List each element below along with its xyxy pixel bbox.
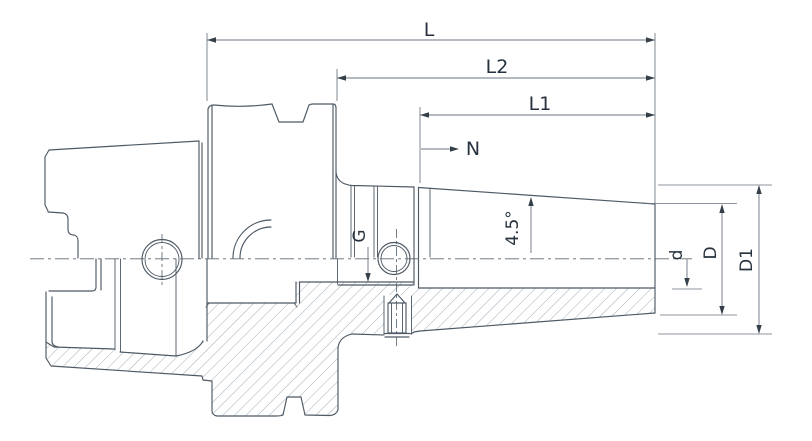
dim-label-D: D <box>701 246 721 259</box>
tool-holder-drawing: L L2 L1 N G <box>0 0 812 441</box>
set-screw <box>384 294 410 337</box>
flange-top <box>214 104 272 106</box>
flange-fillet-arcs <box>233 220 271 258</box>
dim-L: L <box>207 19 655 43</box>
dim-angle: 4.5° <box>503 197 534 253</box>
dim-L2: L2 <box>337 56 655 81</box>
flange-groove <box>272 104 309 122</box>
dim-label-angle: 4.5° <box>503 210 523 246</box>
dim-label-L1: L1 <box>529 93 552 115</box>
cone-start-step <box>414 187 419 288</box>
flange-collar-top <box>309 104 336 108</box>
flange-corner <box>208 105 214 109</box>
dim-label-d: d <box>667 250 687 261</box>
drive-slot-notch <box>48 212 78 258</box>
shank-left-face <box>45 157 48 211</box>
flange-right-face <box>333 105 336 258</box>
dim-label-L: L <box>424 19 435 41</box>
neck-top-edge <box>336 172 414 187</box>
shank-flange-step <box>199 141 202 258</box>
cone-top-edge <box>419 188 656 205</box>
section-hatch-region <box>46 282 655 416</box>
dim-D: D <box>701 204 725 315</box>
dim-D1: D1 <box>737 185 762 334</box>
dim-d: d <box>667 250 690 287</box>
screw-base-lines <box>384 334 410 338</box>
technical-drawing-page: L L2 L1 N G <box>0 0 812 441</box>
dimensions: L L2 L1 N G <box>207 19 772 334</box>
dim-label-G: G <box>350 229 370 242</box>
part-outline-lower <box>46 259 655 416</box>
dim-L1: L1 <box>420 93 655 118</box>
flange-left-face <box>208 106 212 258</box>
dim-N: N <box>421 138 480 160</box>
dim-G: G <box>350 229 371 282</box>
dim-label-L2: L2 <box>486 56 509 78</box>
screw-body <box>388 303 406 333</box>
cavity-step-walls <box>115 259 176 356</box>
cavity-left-wall <box>52 297 58 347</box>
screw-thread-lines <box>392 303 403 333</box>
screw-cone-point <box>389 294 405 303</box>
slot-floor <box>49 259 101 291</box>
dim-label-D1: D1 <box>737 248 757 272</box>
dim-label-N: N <box>466 138 480 160</box>
shank-top-edge <box>45 141 199 157</box>
